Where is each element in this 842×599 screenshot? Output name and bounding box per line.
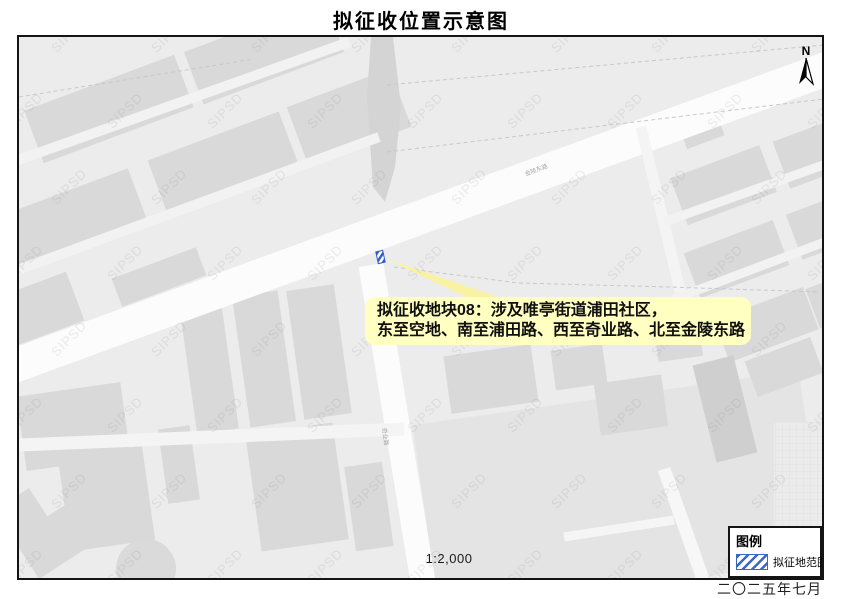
page-title: 拟征收位置示意图: [0, 5, 842, 34]
callout-line1: 拟征收地块08：涉及唯亭街道浦田社区，: [377, 301, 739, 321]
legend-title: 图例: [736, 531, 814, 550]
north-label: N: [791, 45, 821, 57]
legend-item: 拟征地范围: [736, 554, 814, 570]
callout-line2: 东至空地、南至浦田路、西至奇业路、北至金陵东路: [377, 321, 739, 341]
north-arrow-icon: [796, 57, 816, 87]
north-arrow: N: [791, 45, 821, 92]
date-label: 二〇二五年七月: [717, 579, 822, 599]
legend: 图例 拟征地范围: [728, 526, 822, 578]
legend-item-label: 拟征地范围: [768, 554, 824, 570]
callout-box: 拟征收地块08：涉及唯亭街道浦田社区， 东至空地、南至浦田路、西至奇业路、北至金…: [365, 297, 751, 345]
scale-label: 1:2,000: [404, 551, 494, 566]
legend-swatch-hatch-icon: [736, 554, 768, 570]
map-frame: SIPSDSIPSDSIPSDSIPSDSIPSDSIPSDSIPSDSIPSD…: [17, 35, 824, 580]
